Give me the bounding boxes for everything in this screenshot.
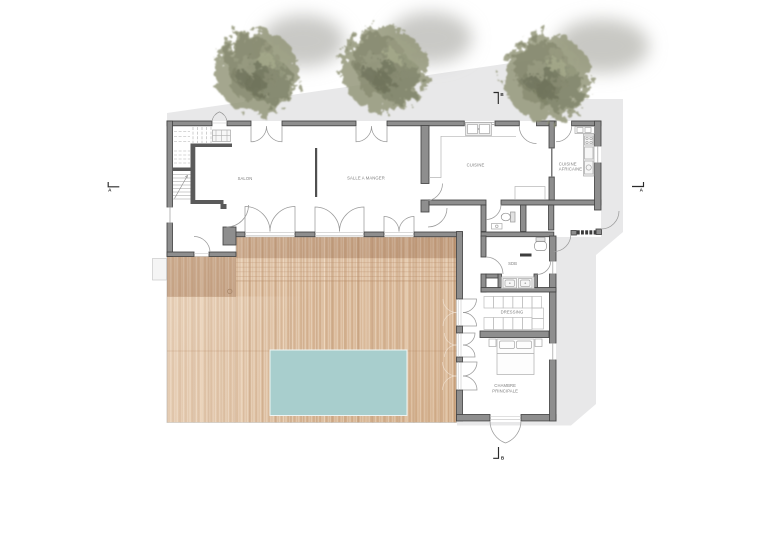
svg-text:PRINCIPALE: PRINCIPALE [492, 388, 518, 393]
svg-text:AFRICAINE: AFRICAINE [559, 166, 583, 171]
svg-text:SALLE A MANGER: SALLE A MANGER [347, 176, 385, 181]
svg-text:A: A [108, 188, 112, 193]
svg-text:CUISINE: CUISINE [467, 162, 485, 167]
svg-text:A: A [640, 188, 644, 193]
svg-text:B: B [501, 456, 505, 461]
svg-text:SALON: SALON [238, 176, 253, 181]
svg-text:SDB: SDB [508, 261, 517, 266]
svg-text:DRESSING: DRESSING [501, 310, 524, 315]
